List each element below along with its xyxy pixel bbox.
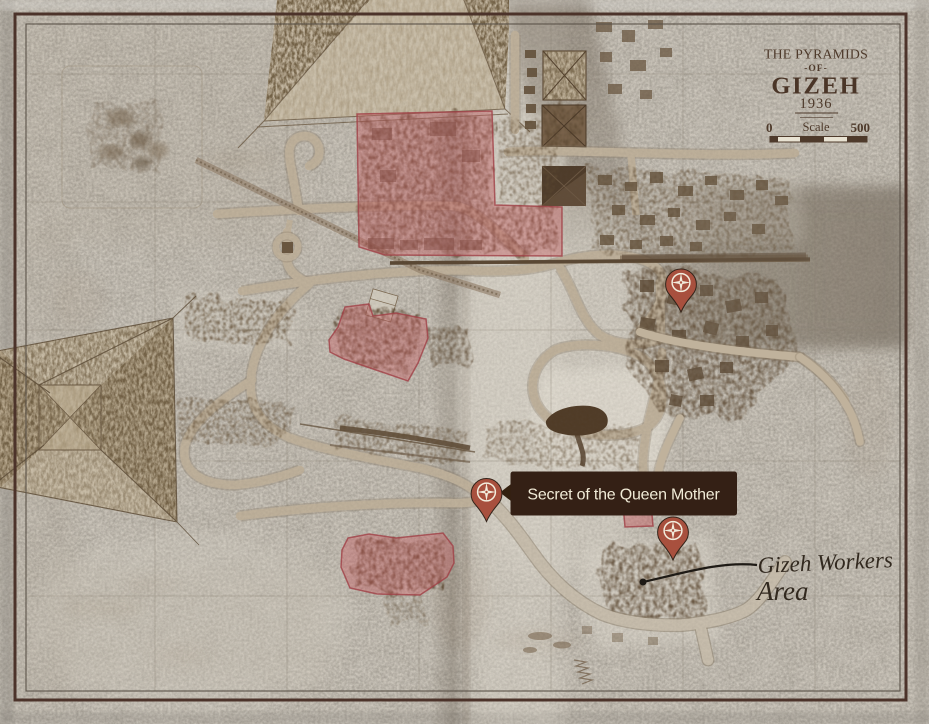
svg-text:Scale: Scale (802, 120, 830, 134)
svg-text:THE PYRAMIDS: THE PYRAMIDS (764, 47, 868, 62)
svg-text:Area: Area (755, 576, 808, 606)
svg-text:Secret of the Queen Mother: Secret of the Queen Mother (527, 487, 720, 504)
svg-text:1936: 1936 (800, 96, 833, 112)
svg-text:500: 500 (851, 120, 871, 135)
svg-text:0: 0 (766, 120, 773, 135)
